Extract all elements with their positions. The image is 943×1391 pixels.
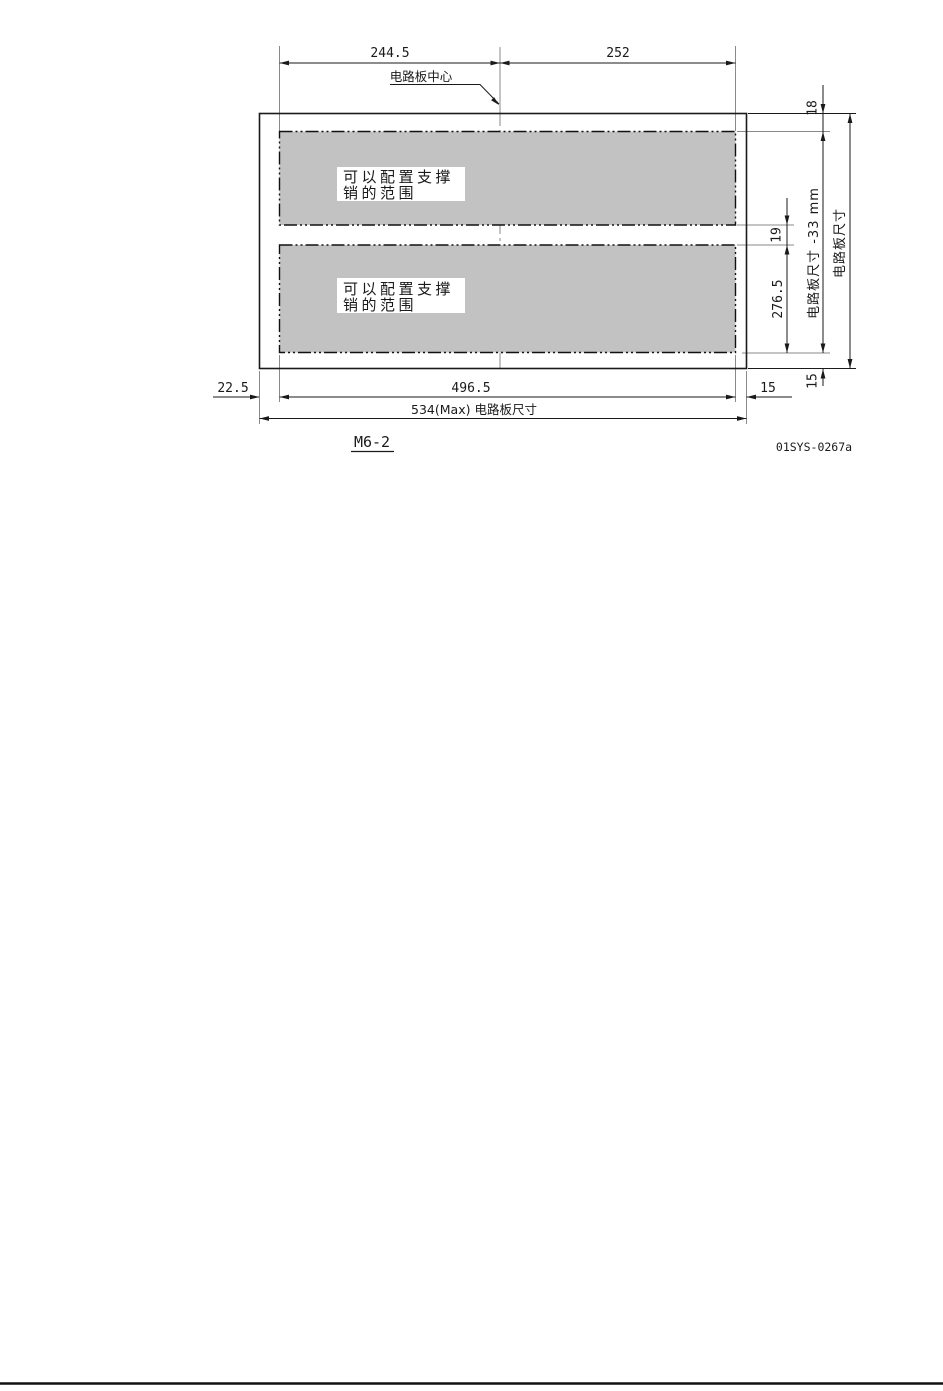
- dimension-arrowhead: [821, 104, 826, 114]
- extension-lines: [260, 46, 857, 424]
- center-callout-label: 电路板中心: [390, 69, 453, 84]
- technical-drawing: 可以配置支撑 销的范围 可以配置支撑 销的范围 244.5 252 电路板中心: [0, 0, 943, 1391]
- dimension-arrowhead: [747, 395, 757, 400]
- dimension-label-board-height: 电路板尺寸: [832, 208, 848, 278]
- region-label-line2: 销的范围: [343, 296, 417, 314]
- dimension-value-board-width-max: 534(Max) 电路板尺寸: [411, 402, 537, 417]
- dimension-value-left-margin: 22.5: [217, 381, 248, 396]
- dimension-regions-vertical-extent: 电路板尺寸 -33 mm: [806, 187, 825, 353]
- dimension-arrowhead: [821, 369, 826, 379]
- center-callout: 电路板中心: [390, 69, 499, 105]
- dimension-arrowhead: [848, 359, 853, 369]
- dimension-top: 244.5 252: [280, 46, 736, 65]
- dimension-arrowhead: [726, 61, 736, 66]
- dimension-arrowhead: [280, 61, 290, 66]
- support-pin-region-bottom: 可以配置支撑 销的范围: [280, 245, 736, 353]
- dimension-value-region-gap: 19: [770, 227, 785, 243]
- dimension-arrowhead: [821, 132, 826, 142]
- dimension-value-right-margin: 15: [760, 381, 776, 396]
- dimension-value-center-to-left: 244.5: [370, 46, 409, 61]
- dimension-regions-width: 496.5: [280, 381, 736, 399]
- dimension-value-regions-vertical-extent: 电路板尺寸 -33 mm: [806, 187, 822, 319]
- dimension-arrowhead: [500, 61, 510, 66]
- dimension-arrowhead: [785, 245, 790, 255]
- dimension-right-margin: 15: [747, 381, 793, 399]
- dimension-arrowhead: [785, 216, 790, 226]
- dimension-value-bottom-margin: 15: [806, 373, 821, 389]
- dimension-arrowhead: [491, 61, 501, 66]
- figure-label-text: M6-2: [354, 433, 390, 451]
- dimension-board-height: 电路板尺寸: [832, 114, 852, 369]
- dimension-board-width-max: 534(Max) 电路板尺寸: [260, 402, 747, 421]
- dimension-arrowhead: [737, 416, 747, 421]
- dimension-arrowhead: [726, 395, 736, 400]
- dimension-arrowhead: [250, 395, 260, 400]
- support-pin-region-top: 可以配置支撑 销的范围: [280, 132, 736, 226]
- dimension-left-margin: 22.5: [213, 381, 260, 399]
- figure-label: M6-2: [351, 433, 394, 452]
- dimension-arrowhead: [785, 344, 790, 354]
- dimension-arrowhead: [260, 416, 270, 421]
- region-label-line2: 销的范围: [343, 184, 417, 202]
- document-page: 可以配置支撑 销的范围 可以配置支撑 销的范围 244.5 252 电路板中心: [0, 0, 943, 1391]
- callout-arrowhead: [491, 97, 499, 105]
- dimension-region-gap: 19: [770, 198, 790, 353]
- dimension-arrowhead: [848, 114, 853, 124]
- dimension-bottom-margin-vertical: 15: [806, 369, 826, 389]
- dimension-value-top-margin: 18: [806, 100, 821, 116]
- dimension-arrowhead: [280, 395, 290, 400]
- dimension-value-center-to-right: 252: [606, 46, 629, 61]
- dimension-value-regions-width: 496.5: [451, 381, 490, 396]
- dimension-value-lower-span: 276.5: [771, 279, 786, 318]
- drawing-number: 01SYS-0267a: [776, 440, 852, 454]
- dimension-arrowhead: [821, 344, 826, 354]
- callout-leader-line: [390, 85, 499, 105]
